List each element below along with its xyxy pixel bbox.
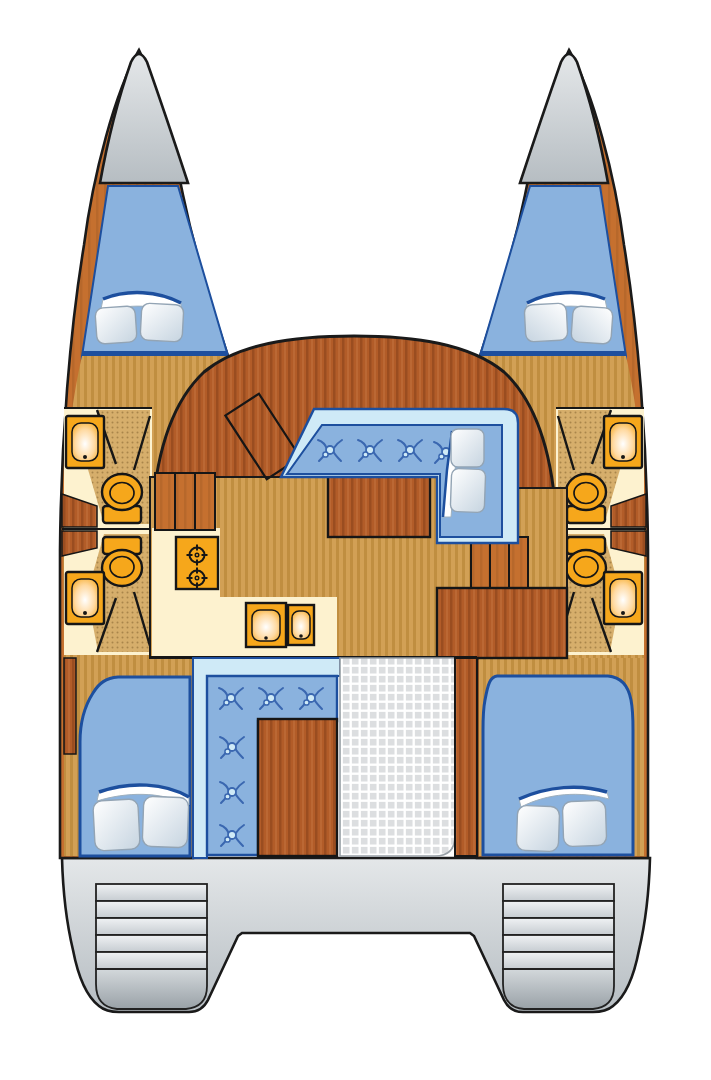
pillow <box>450 468 485 512</box>
pillow <box>451 429 484 467</box>
companionway-steps-starboard <box>471 537 528 589</box>
aft-galley-unit <box>437 588 567 658</box>
stern-platform <box>62 858 650 1012</box>
saloon <box>150 336 567 658</box>
port-aft-cabin <box>64 658 193 856</box>
pillow <box>562 800 607 846</box>
cockpit-floor <box>340 658 455 856</box>
starboard-aft-cabin <box>479 658 644 856</box>
transom-steps-starboard <box>503 884 614 1009</box>
galley-sink <box>246 603 314 647</box>
cockpit-side-unit <box>455 658 477 856</box>
transom-steps-port <box>96 884 207 1009</box>
pillow <box>142 796 189 848</box>
pillow <box>93 799 141 851</box>
catamaran-floor-plan <box>0 0 711 1080</box>
companionway-steps-port <box>155 473 215 530</box>
saloon-table <box>328 474 430 537</box>
cockpit <box>150 657 477 858</box>
cockpit-table <box>258 719 337 856</box>
pillow <box>516 805 560 851</box>
